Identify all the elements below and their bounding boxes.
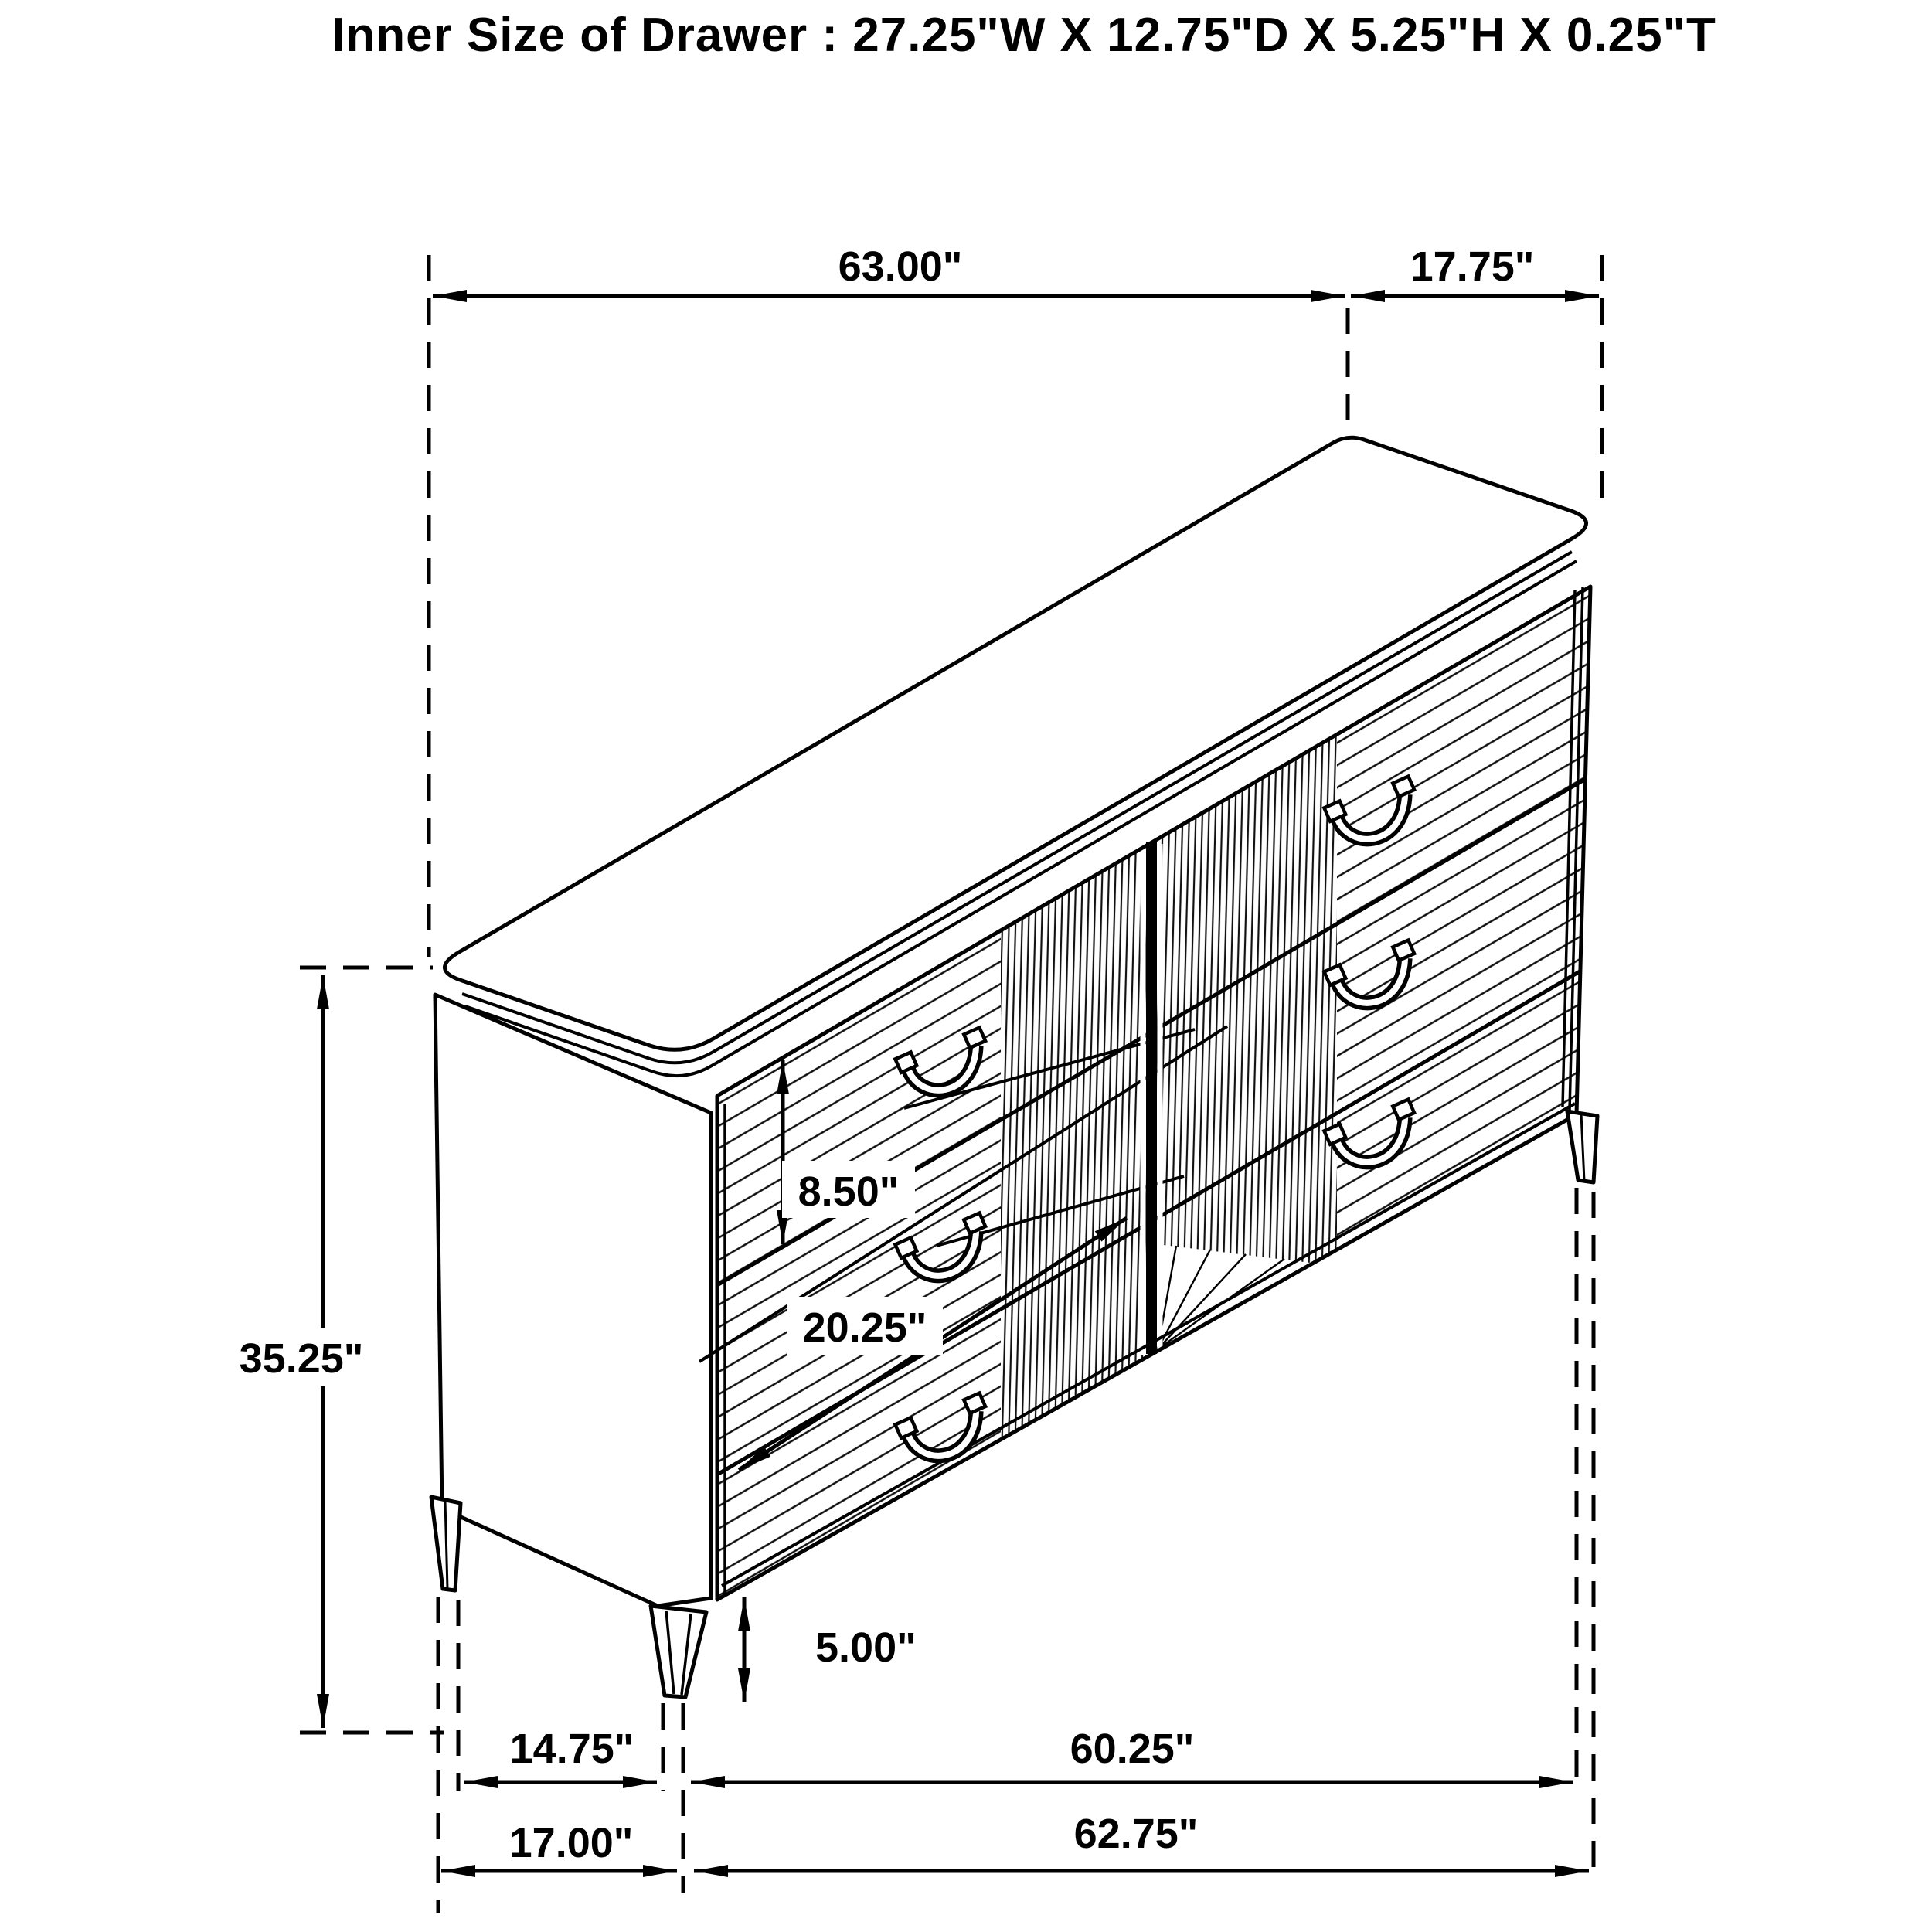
dimension-overall-height: 35.25" xyxy=(230,975,374,1728)
center-divider xyxy=(1143,842,1160,1355)
drawing-title: Inner Size of Drawer : 27.25"W X 12.75"D… xyxy=(332,9,1716,62)
dimension-top-depth: 17.75" xyxy=(1351,243,1599,296)
dim-drawer-diagonal-label: 20.25" xyxy=(803,1304,927,1351)
dim-leg-span-label: 60.25" xyxy=(1070,1726,1195,1772)
drawing-page: 63.00" 17.75" 35.25" 8.50" 20.25" 5.00" … xyxy=(0,0,1932,1932)
dimension-top-width: 63.00" xyxy=(433,243,1345,296)
dim-leg-inset-label: 14.75" xyxy=(510,1726,634,1772)
dim-leg-height-label: 5.00" xyxy=(815,1624,917,1671)
dimension-leg-height: 5.00" xyxy=(744,1597,917,1702)
leg-front-left xyxy=(651,1606,706,1697)
leg-back-left xyxy=(431,1497,461,1590)
dim-base-width-label: 62.75" xyxy=(1074,1811,1199,1857)
dresser-technical-drawing: 63.00" 17.75" 35.25" 8.50" 20.25" 5.00" … xyxy=(0,0,1932,1932)
dimension-base-width: 62.75" xyxy=(694,1811,1589,1871)
dresser-left-side-panel xyxy=(435,995,711,1606)
dim-top-depth-label: 17.75" xyxy=(1410,243,1535,290)
dim-base-depth-label: 17.00" xyxy=(509,1820,634,1866)
dim-overall-height-label: 35.25" xyxy=(240,1335,364,1382)
dimension-base-depth: 17.00" xyxy=(441,1820,677,1871)
dimension-leg-span-width: 60.25" xyxy=(691,1726,1573,1782)
dim-top-width-label: 63.00" xyxy=(838,243,963,290)
leg-front-right xyxy=(1567,1111,1597,1182)
dimension-leg-inset: 14.75" xyxy=(464,1726,657,1782)
dim-drawer-height-label: 8.50" xyxy=(798,1168,900,1215)
